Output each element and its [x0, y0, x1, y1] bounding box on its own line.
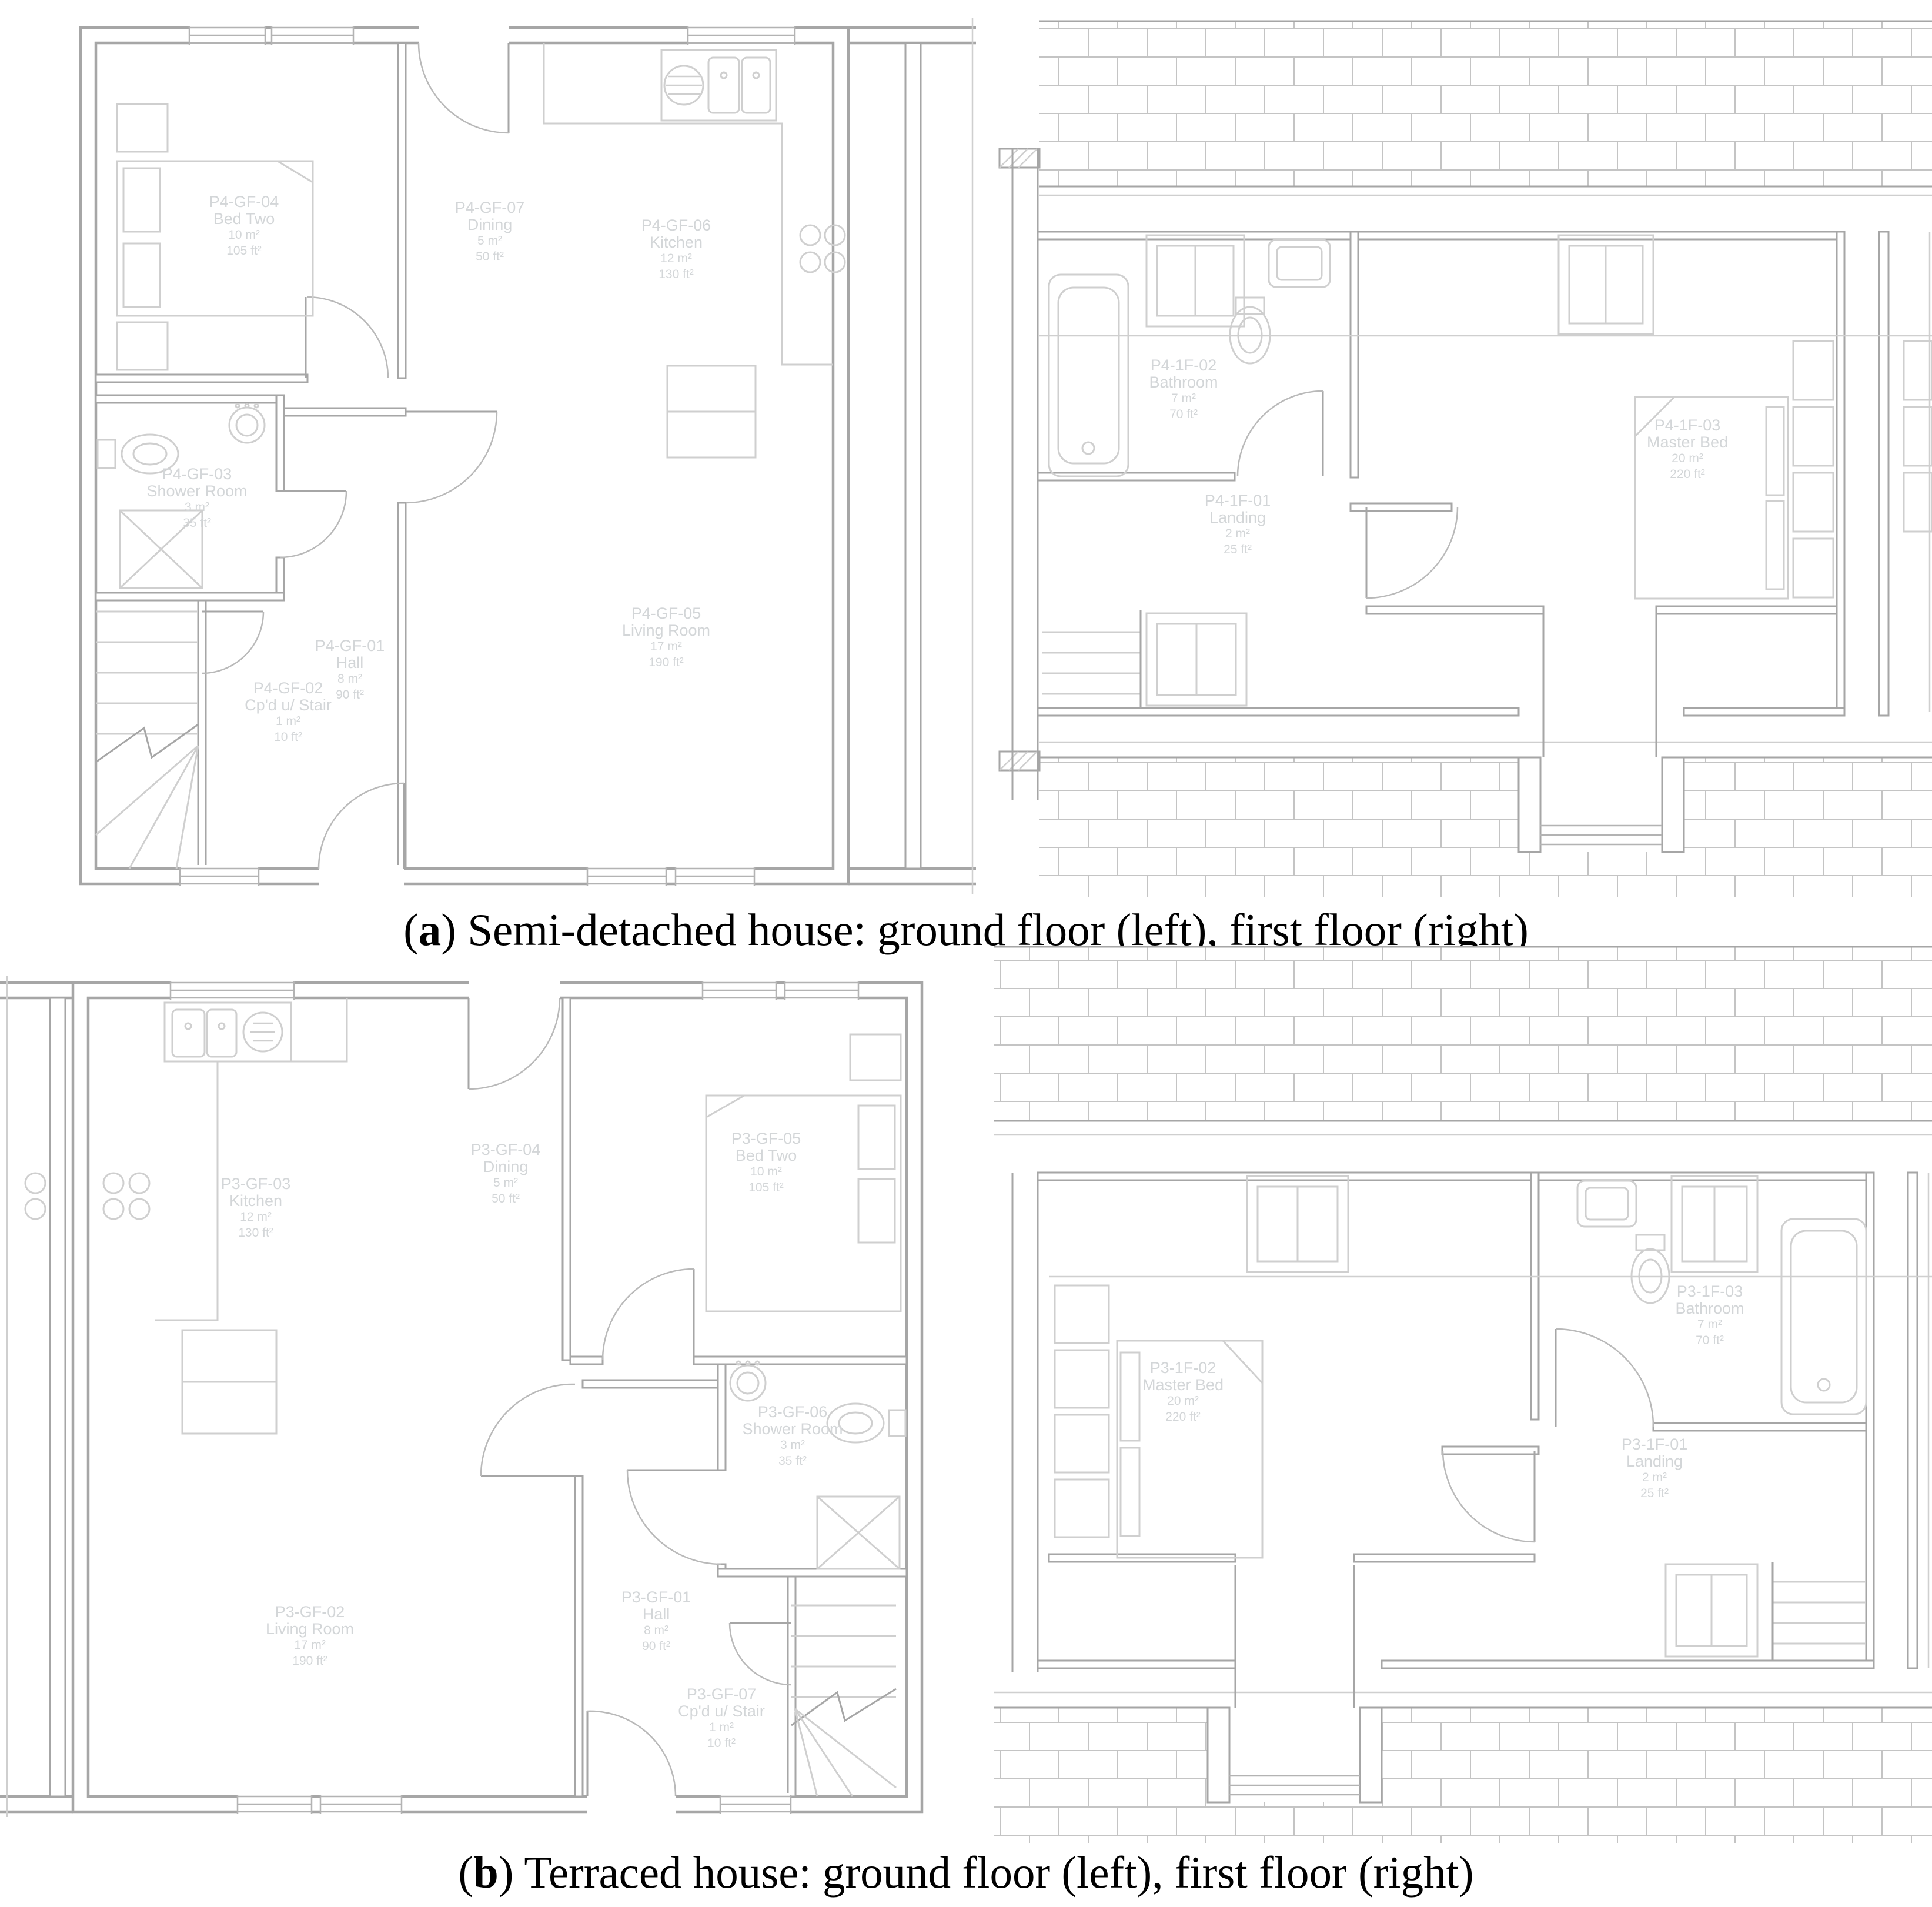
svg-text:25 ft²: 25 ft²: [1224, 543, 1252, 556]
room-label-p4-gf-02: P4-GF-02 Cp'd u/ Stair 1 m² 10 ft²: [245, 679, 332, 744]
svg-text:3 m²: 3 m²: [185, 500, 209, 514]
svg-text:5 m²: 5 m²: [493, 1176, 518, 1190]
svg-text:220 ft²: 220 ft²: [1165, 1410, 1201, 1424]
caption-b-open: (: [458, 1847, 473, 1898]
svg-text:P3-1F-02: P3-1F-02: [1150, 1359, 1216, 1377]
svg-text:105 ft²: 105 ft²: [226, 244, 262, 258]
svg-text:25 ft²: 25 ft²: [1640, 1487, 1669, 1500]
svg-text:17 m²: 17 m²: [650, 640, 682, 653]
svg-text:P3-GF-06: P3-GF-06: [758, 1403, 828, 1421]
svg-text:90 ft²: 90 ft²: [336, 688, 364, 702]
svg-text:Living Room: Living Room: [622, 622, 710, 639]
svg-text:P3-1F-03: P3-1F-03: [1677, 1283, 1743, 1300]
svg-text:12 m²: 12 m²: [240, 1210, 272, 1224]
svg-text:105 ft²: 105 ft²: [748, 1181, 784, 1194]
caption-a-open: (: [403, 904, 419, 955]
svg-text:Hall: Hall: [643, 1605, 670, 1623]
room-label-p4-1f-02: P4-1F-02 Bathroom 7 m² 70 ft²: [1149, 356, 1218, 421]
svg-text:Living Room: Living Room: [266, 1620, 354, 1638]
furniture-group: [1042, 235, 1932, 708]
svg-text:P3-GF-01: P3-GF-01: [621, 1588, 691, 1606]
svg-text:Master Bed: Master Bed: [1647, 433, 1728, 451]
svg-text:P3-GF-02: P3-GF-02: [275, 1603, 345, 1621]
furniture-group: [25, 998, 905, 1796]
svg-text:8 m²: 8 m²: [644, 1624, 668, 1637]
room-label-p4-gf-05: P4-GF-05 Living Room 17 m² 190 ft²: [622, 605, 710, 669]
svg-text:220 ft²: 220 ft²: [1670, 467, 1705, 481]
room-label-p3-gf-02: P3-GF-02 Living Room 17 m² 190 ft²: [266, 1603, 354, 1668]
room-label-p4-gf-03: P4-GF-03 Shower Room 3 m² 35 ft²: [146, 465, 247, 530]
svg-text:Bathroom: Bathroom: [1675, 1300, 1744, 1317]
svg-text:10 m²: 10 m²: [750, 1165, 782, 1178]
svg-text:Kitchen: Kitchen: [650, 233, 703, 251]
svg-text:10 m²: 10 m²: [228, 228, 260, 242]
room-label-p3-1f-03: P3-1F-03 Bathroom 7 m² 70 ft²: [1675, 1283, 1744, 1347]
svg-text:Shower Room: Shower Room: [146, 482, 247, 500]
svg-text:Landing: Landing: [1626, 1452, 1683, 1470]
svg-text:130 ft²: 130 ft²: [238, 1226, 273, 1240]
svg-text:130 ft²: 130 ft²: [659, 268, 694, 281]
svg-text:10 ft²: 10 ft²: [707, 1736, 736, 1750]
svg-text:P4-GF-06: P4-GF-06: [641, 216, 711, 234]
svg-text:Master Bed: Master Bed: [1142, 1376, 1224, 1394]
caption-b-close: ): [499, 1847, 514, 1898]
svg-text:2 m²: 2 m²: [1642, 1471, 1667, 1484]
svg-text:12 m²: 12 m²: [660, 252, 692, 265]
svg-text:P4-1F-03: P4-1F-03: [1654, 416, 1721, 434]
svg-text:Cp'd u/ Stair: Cp'd u/ Stair: [245, 696, 332, 714]
floorplan-terraced-ground: P3-GF-03 Kitchen 12 m² 130 ft² P3-GF-04 …: [0, 973, 941, 1838]
svg-text:10 ft²: 10 ft²: [274, 730, 302, 744]
svg-text:Kitchen: Kitchen: [229, 1192, 282, 1210]
svg-text:Dining: Dining: [483, 1158, 529, 1175]
svg-text:17 m²: 17 m²: [294, 1638, 326, 1652]
room-label-p3-gf-06: P3-GF-06 Shower Room 3 m² 35 ft²: [742, 1403, 843, 1468]
room-label-p4-1f-01: P4-1F-01 Landing 2 m² 25 ft²: [1205, 492, 1271, 556]
svg-text:P4-GF-01: P4-GF-01: [315, 637, 385, 654]
svg-text:Bathroom: Bathroom: [1149, 373, 1218, 391]
svg-text:Landing: Landing: [1209, 509, 1266, 526]
floorplan-semi-detached-first: P4-1F-02 Bathroom 7 m² 70 ft² P4-1F-01 L…: [988, 0, 1932, 903]
walls-group: [0, 976, 922, 1817]
svg-text:Bed Two: Bed Two: [736, 1147, 797, 1164]
walls-group: [81, 18, 976, 894]
svg-text:50 ft²: 50 ft²: [476, 250, 504, 263]
svg-text:3 m²: 3 m²: [780, 1438, 805, 1452]
svg-text:P4-GF-05: P4-GF-05: [631, 605, 701, 622]
svg-text:Cp'd u/ Stair: Cp'd u/ Stair: [678, 1702, 765, 1720]
room-label-p4-gf-04: P4-GF-04 Bed Two 10 m² 105 ft²: [209, 193, 279, 258]
brick-bands-group: [1000, 21, 1932, 897]
svg-text:7 m²: 7 m²: [1697, 1318, 1722, 1331]
svg-text:35 ft²: 35 ft²: [778, 1454, 807, 1468]
figure-floorplans: P4-GF-04 Bed Two 10 m² 105 ft² P4-GF-07 …: [0, 0, 1932, 1907]
svg-text:P4-GF-04: P4-GF-04: [209, 193, 279, 211]
room-label-p4-1f-03: P4-1F-03 Master Bed 20 m² 220 ft²: [1647, 416, 1728, 481]
svg-text:P4-GF-03: P4-GF-03: [162, 465, 232, 483]
svg-text:1 m²: 1 m²: [709, 1721, 734, 1734]
svg-text:70 ft²: 70 ft²: [1169, 408, 1198, 421]
caption-b: (b) Terraced house: ground floor (left),…: [0, 1846, 1932, 1899]
svg-text:8 m²: 8 m²: [337, 672, 362, 686]
svg-text:50 ft²: 50 ft²: [492, 1192, 520, 1205]
svg-text:70 ft²: 70 ft²: [1696, 1334, 1724, 1347]
svg-text:190 ft²: 190 ft²: [649, 656, 684, 669]
svg-text:P3-GF-05: P3-GF-05: [731, 1130, 801, 1147]
caption-a-close: ): [441, 904, 456, 955]
floorplan-semi-detached-ground: P4-GF-04 Bed Two 10 m² 105 ft² P4-GF-07 …: [0, 0, 979, 903]
room-label-p3-1f-02: P3-1F-02 Master Bed 20 m² 220 ft²: [1142, 1359, 1224, 1424]
floorplan-terraced-first: P3-1F-02 Master Bed 20 m² 220 ft² P3-1F-…: [988, 938, 1932, 1848]
svg-text:5 m²: 5 m²: [477, 234, 502, 248]
caption-a-letter: a: [419, 904, 442, 955]
svg-text:Dining: Dining: [467, 216, 513, 233]
doors-group: [469, 998, 791, 1796]
svg-text:2 m²: 2 m²: [1225, 527, 1250, 540]
svg-text:P3-GF-03: P3-GF-03: [221, 1175, 291, 1193]
svg-text:20 m²: 20 m²: [1167, 1394, 1199, 1408]
windows-group: [180, 24, 795, 887]
svg-text:P4-1F-01: P4-1F-01: [1205, 492, 1271, 509]
room-label-p3-gf-01: P3-GF-01 Hall 8 m² 90 ft²: [621, 1588, 691, 1653]
svg-text:7 m²: 7 m²: [1171, 392, 1196, 405]
room-label-p4-gf-07: P4-GF-07 Dining 5 m² 50 ft²: [455, 199, 525, 263]
room-label-p3-gf-04: P3-GF-04 Dining 5 m² 50 ft²: [471, 1141, 541, 1205]
room-label-p3-gf-03: P3-GF-03 Kitchen 12 m² 130 ft²: [221, 1175, 291, 1240]
svg-text:P4-1F-02: P4-1F-02: [1151, 356, 1217, 374]
svg-text:90 ft²: 90 ft²: [642, 1639, 670, 1653]
svg-text:Bed Two: Bed Two: [213, 210, 275, 228]
svg-text:P3-GF-04: P3-GF-04: [471, 1141, 541, 1158]
room-label-p3-gf-05: P3-GF-05 Bed Two 10 m² 105 ft²: [731, 1130, 801, 1194]
svg-text:P3-GF-07: P3-GF-07: [687, 1685, 757, 1703]
svg-text:Shower Room: Shower Room: [742, 1420, 843, 1438]
room-label-p4-gf-06: P4-GF-06 Kitchen 12 m² 130 ft²: [641, 216, 711, 281]
room-label-p4-gf-01: P4-GF-01 Hall 8 m² 90 ft²: [315, 637, 385, 702]
caption-b-text: Terraced house: ground floor (left), fir…: [513, 1847, 1473, 1898]
svg-text:190 ft²: 190 ft²: [292, 1654, 327, 1668]
doors-group: [202, 43, 509, 869]
svg-text:P4-GF-02: P4-GF-02: [253, 679, 323, 697]
caption-b-letter: b: [473, 1847, 499, 1898]
svg-text:P3-1F-01: P3-1F-01: [1622, 1435, 1688, 1453]
svg-text:35 ft²: 35 ft²: [183, 516, 211, 530]
svg-text:1 m²: 1 m²: [276, 714, 300, 728]
room-label-p3-1f-01: P3-1F-01 Landing 2 m² 25 ft²: [1622, 1435, 1688, 1500]
svg-text:20 m²: 20 m²: [1672, 452, 1703, 465]
furniture-group: [96, 43, 845, 869]
room-label-p3-gf-07: P3-GF-07 Cp'd u/ Stair 1 m² 10 ft²: [678, 1685, 765, 1750]
svg-text:P4-GF-07: P4-GF-07: [455, 199, 525, 216]
brick-bands-group: [994, 947, 1932, 1843]
svg-text:Hall: Hall: [336, 654, 364, 672]
